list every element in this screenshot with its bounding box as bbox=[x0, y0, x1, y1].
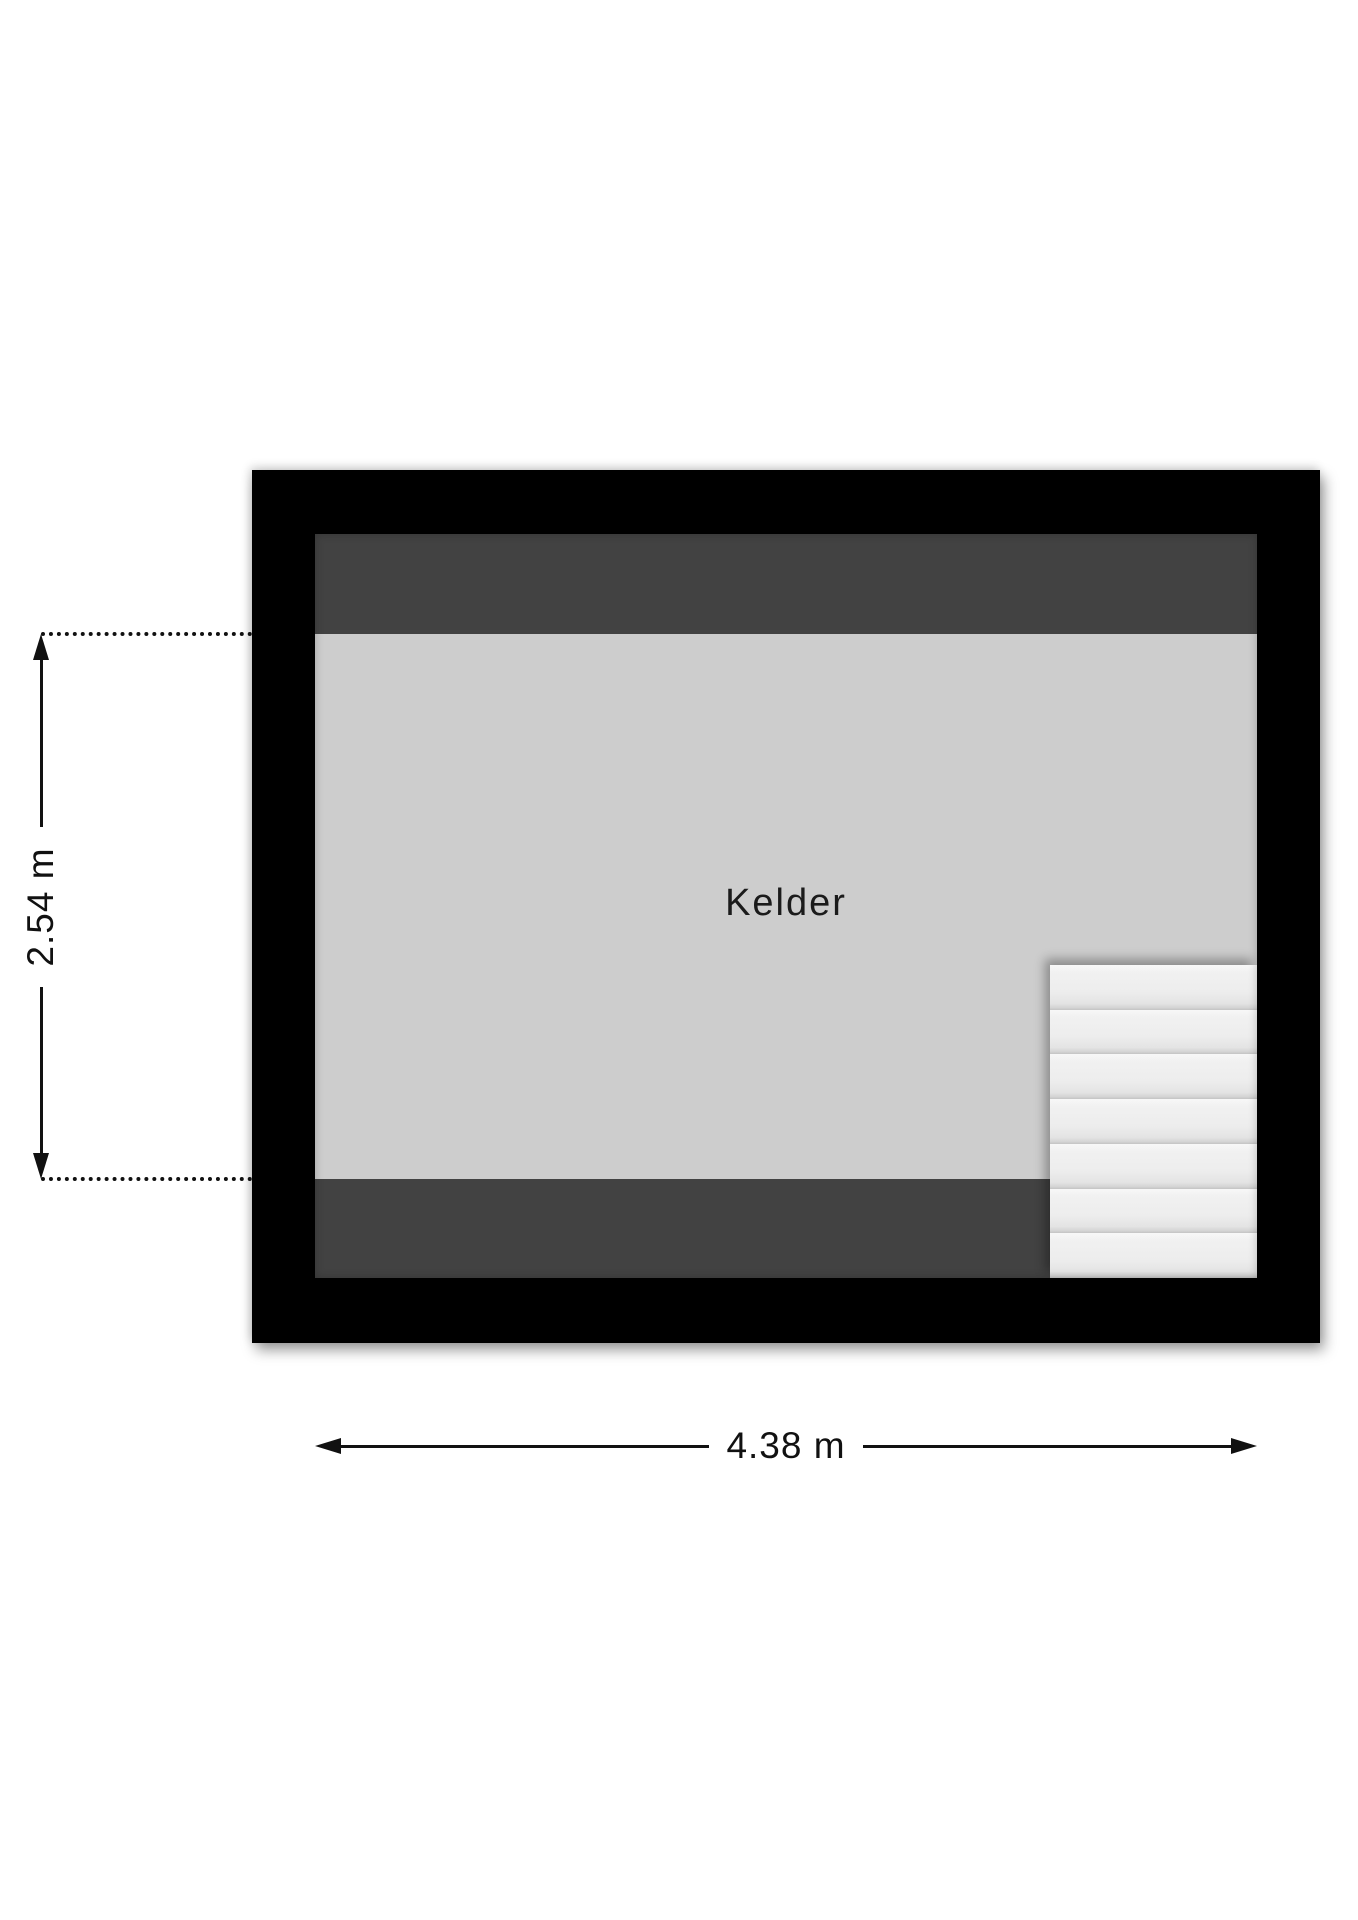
floorplan-canvas: Kelder 2.54 m 4.38 m bbox=[0, 0, 1358, 1920]
height-dimension-line bbox=[40, 660, 43, 827]
basement-outer-wall: Kelder bbox=[252, 470, 1320, 1343]
extension-line-bottom bbox=[41, 1177, 252, 1181]
width-dimension-line bbox=[341, 1445, 709, 1448]
width-dimension-label: 4.38 m bbox=[709, 1425, 863, 1467]
stair-tread bbox=[1050, 1054, 1257, 1099]
height-dimension-label-box: 2.54 m bbox=[22, 827, 60, 987]
arrow-right-icon bbox=[1231, 1438, 1257, 1454]
arrow-down-icon bbox=[33, 1153, 49, 1179]
height-dimension-line bbox=[40, 987, 43, 1154]
height-dimension-label: 2.54 m bbox=[20, 847, 62, 966]
arrow-up-icon bbox=[33, 634, 49, 660]
basement-interior: Kelder bbox=[315, 534, 1257, 1278]
stair-tread bbox=[1050, 1099, 1257, 1144]
room-label: Kelder bbox=[315, 882, 1257, 925]
staircase bbox=[1050, 965, 1257, 1278]
width-dimension: 4.38 m bbox=[315, 1427, 1257, 1465]
stair-tread bbox=[1050, 1233, 1257, 1278]
bottom-wall-zone bbox=[315, 1179, 1050, 1278]
stair-tread bbox=[1050, 1010, 1257, 1055]
stair-tread bbox=[1050, 1189, 1257, 1234]
arrow-left-icon bbox=[315, 1438, 341, 1454]
extension-line-top bbox=[41, 632, 252, 636]
top-wall-zone bbox=[315, 534, 1257, 634]
stair-tread bbox=[1050, 965, 1257, 1010]
stair-tread bbox=[1050, 1144, 1257, 1189]
width-dimension-line bbox=[863, 1445, 1231, 1448]
height-dimension: 2.54 m bbox=[22, 634, 60, 1179]
